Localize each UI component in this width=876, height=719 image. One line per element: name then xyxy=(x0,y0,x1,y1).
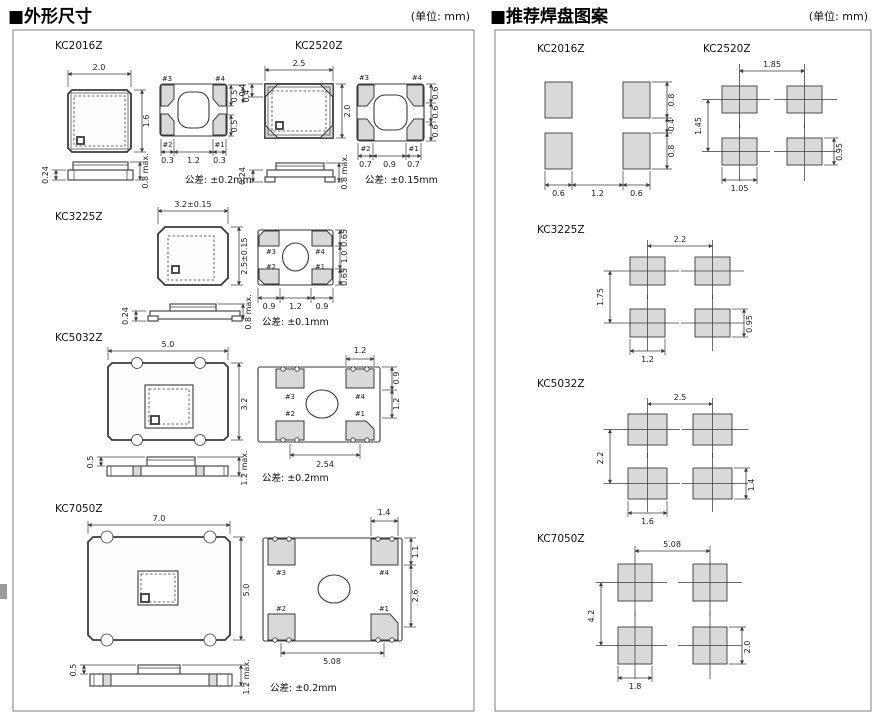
outline-kc3225z-side-view: 0.24 0.8 max. xyxy=(121,294,253,329)
dim-pad-width: 1.2 xyxy=(354,346,367,355)
pad-label: #2 xyxy=(162,141,172,149)
pad-label: #4 xyxy=(215,75,225,83)
tolerance-label: 公差: ±0.2mm xyxy=(262,472,329,484)
dim-right: 0.8 xyxy=(667,94,676,107)
pad-label: #2 xyxy=(285,410,295,418)
dim-right: 1.1 xyxy=(411,546,420,559)
orientation-mark xyxy=(77,137,84,144)
dim-bottom: 0.6 xyxy=(630,189,643,198)
dim-pitch-x: 5.08 xyxy=(663,540,681,549)
outline-kc3225z-bottom-view: #3 #4 #2 #1 0.65 1.0 0.65 0.9 1.2 0.9 公差… xyxy=(258,229,349,328)
dim-side-height: 1.2 max. xyxy=(240,450,249,485)
dim-side-height: 0.8 max. xyxy=(340,154,349,189)
land-kc3225z: KC3225Z 2.2 1.75 1.2 0.95 xyxy=(537,224,754,364)
dim-side-height: 1.2 max. xyxy=(242,659,251,694)
dim-side-thickness: 0.5 xyxy=(69,664,78,677)
outline-kc5032z-bottom-view: #3 #4 #2 #1 1.2 0.9 1.2 2.54 公差: ±0.2mm xyxy=(258,346,401,484)
pad-label: #3 xyxy=(266,248,276,256)
dim-pitch-y: 4.2 xyxy=(587,610,596,623)
dim-side-height: 0.8 max. xyxy=(244,294,253,329)
pad-label: #2 xyxy=(360,145,370,153)
model-label: KC2520Z xyxy=(295,40,343,52)
pad-label: #4 xyxy=(355,393,365,401)
model-label: KC2016Z xyxy=(537,43,585,55)
dim-right: 0.9 xyxy=(392,372,401,385)
dim-top-width: 2.0 xyxy=(93,63,106,72)
pad-label: #1 xyxy=(379,605,389,613)
dim-right: 0.6 xyxy=(431,125,440,138)
drawing-canvas: KC2016Z 2.0 1.6 #3 #4 #2 #1 xyxy=(0,0,876,719)
dim-bottom: 0.7 xyxy=(359,160,372,169)
model-label: KC2016Z xyxy=(55,40,103,52)
tolerance-label: 公差: ±0.15mm xyxy=(365,174,438,186)
dim-bottom: 0.9 xyxy=(316,302,329,311)
page-edge-tab xyxy=(0,584,7,599)
pad-label: #3 xyxy=(285,393,295,401)
dim-pad-height: 2.0 xyxy=(743,641,752,654)
pad-label: #1 xyxy=(315,263,325,271)
dim-right: 0.65 xyxy=(340,229,349,247)
dim-pad-height: 0.95 xyxy=(835,143,844,161)
outline-kc3225z: KC3225Z 3.2±0.15 2.5±0.15 #3 #4 #2 #1 xyxy=(55,200,349,330)
outline-kc2520z-side-view: 0.24 0.8 max. xyxy=(238,154,349,189)
dim-bottom: 1.2 xyxy=(289,302,302,311)
dim-bottom: 0.7 xyxy=(407,160,420,169)
pad-label: #2 xyxy=(266,263,276,271)
land-panel-border xyxy=(495,30,871,711)
dim-top-height: 2.5±0.15 xyxy=(240,237,249,274)
outline-kc2520z: KC2520Z 2.5 2.0 0.4 #3 #4 xyxy=(238,40,440,190)
dim-right: 0.6 xyxy=(431,87,440,100)
dim-top-height: 2.0 xyxy=(343,105,352,118)
dim-pitch-x: 1.85 xyxy=(763,60,781,69)
dim-pad-width: 1.4 xyxy=(378,508,391,517)
dim-right: 0.65 xyxy=(340,268,349,286)
land-kc2016z: KC2016Z 0.8 0.4 0.8 0.6 1.2 0.6 xyxy=(537,43,676,198)
dim-pad-width: 1.05 xyxy=(731,184,749,193)
dim-right: 1.0 xyxy=(340,251,349,264)
land-kc2520z: KC2520Z 1.85 1.45 1.05 0.95 xyxy=(694,43,844,193)
orientation-mark xyxy=(276,122,283,129)
outline-kc5032z-top-view: 5.0 3.2 xyxy=(108,340,249,446)
dim-pitch-x: 2.2 xyxy=(674,235,687,244)
dim-top-height: 5.0 xyxy=(242,584,251,597)
dim-right: 0.5 xyxy=(230,120,239,133)
dim-right: 0.4 xyxy=(667,119,676,132)
outline-kc2016z-side-view: 0.24 0.8 max. xyxy=(41,153,150,188)
pad-label: #3 xyxy=(276,569,286,577)
dim-pad-width: 1.8 xyxy=(629,682,642,691)
land-pad xyxy=(545,133,572,169)
orientation-mark xyxy=(141,594,149,602)
dim-side-height: 0.8 max. xyxy=(141,153,150,188)
dim-top-height: 1.6 xyxy=(142,115,151,128)
pad-label: #4 xyxy=(379,569,389,577)
dim-side-thickness: 0.24 xyxy=(121,307,130,325)
dim-top-width: 3.2±0.15 xyxy=(174,200,211,209)
pad-label: #3 xyxy=(359,74,369,82)
pad-label: #1 xyxy=(355,410,365,418)
pad-label: #2 xyxy=(276,605,286,613)
dim-top-width: 7.0 xyxy=(153,514,166,523)
dim-top-width: 2.5 xyxy=(293,59,306,68)
model-label: KC3225Z xyxy=(537,224,585,236)
dim-pad-width: 1.6 xyxy=(641,517,654,526)
land-pad xyxy=(623,82,650,118)
dim-side-thickness: 0.24 xyxy=(238,167,247,185)
model-label: KC5032Z xyxy=(537,378,585,390)
dim-pitch-x: 2.5 xyxy=(674,393,687,402)
model-label: KC3225Z xyxy=(55,211,103,223)
tolerance-label: 公差: ±0.2mm xyxy=(270,682,337,694)
pad-label: #4 xyxy=(412,74,422,82)
dim-bottom: 0.9 xyxy=(383,160,396,169)
tolerance-label: 公差: ±0.1mm xyxy=(262,316,329,328)
dim-right: 0.8 xyxy=(667,145,676,158)
dim-right: 2.6 xyxy=(411,590,420,603)
outline-kc7050z-bottom-view: #3 #4 #2 #1 1.4 1.1 2.6 5.08 公差: ±0.2mm xyxy=(263,508,420,694)
outline-kc2520z-top-view: 2.5 2.0 0.4 xyxy=(238,59,352,138)
outline-kc2520z-bottom-view: #3 #4 #2 #1 0.7 0.9 0.7 0.6 0.6 0.6 xyxy=(357,74,440,169)
land-pad xyxy=(545,82,572,118)
dim-pitch-y: 1.45 xyxy=(694,117,703,135)
dim-bottom: 0.9 xyxy=(263,302,276,311)
outline-kc7050z-top-view: 7.0 5.0 xyxy=(88,514,251,646)
land-pad xyxy=(623,133,650,169)
outline-kc3225z-top-view: 3.2±0.15 2.5±0.15 xyxy=(158,200,249,285)
outline-kc2016z-top-view: 2.0 1.6 xyxy=(68,63,151,152)
dim-top-width: 5.0 xyxy=(162,340,175,349)
model-label: KC2520Z xyxy=(703,43,751,55)
dim-bottom: 0.3 xyxy=(161,156,174,165)
dim-pad-width: 1.2 xyxy=(641,355,654,364)
dim-corner-pad: 0.4 xyxy=(238,84,247,97)
outline-kc7050z-side-view: 0.5 1.2 max. xyxy=(69,659,251,694)
dim-bottom: 1.2 xyxy=(591,189,604,198)
dim-bottom: 2.54 xyxy=(316,460,334,469)
orientation-mark xyxy=(151,416,159,424)
dim-pad-height: 1.4 xyxy=(747,479,756,492)
dim-pad-height: 0.95 xyxy=(745,315,754,333)
outline-kc5032z-side-view: 0.5 1.2 max. xyxy=(86,450,249,485)
model-label: KC7050Z xyxy=(537,533,585,545)
dim-right: 1.2 xyxy=(392,398,401,411)
pad-label: #1 xyxy=(214,141,224,149)
land-kc5032z: KC5032Z 2.5 2.2 1.6 1.4 xyxy=(537,378,756,526)
dim-pitch-y: 1.75 xyxy=(596,288,605,306)
dim-pitch-y: 2.2 xyxy=(596,452,605,465)
dim-bottom: 0.3 xyxy=(213,156,226,165)
land-kc7050z: KC7050Z 5.08 4.2 1.8 2.0 xyxy=(537,533,752,691)
outline-kc7050z: KC7050Z 7.0 5.0 #3 #4 #2 xyxy=(55,503,420,695)
datasheet-page: { "header": { "outline_title": "■外形尺寸", … xyxy=(0,0,876,719)
dim-side-thickness: 0.24 xyxy=(41,166,50,184)
dim-top-height: 3.2 xyxy=(240,398,249,411)
model-label: KC7050Z xyxy=(55,503,103,515)
pad-label: #4 xyxy=(315,248,325,256)
pad-label: #3 xyxy=(162,75,172,83)
outline-kc2016z: KC2016Z 2.0 1.6 #3 #4 #2 #1 xyxy=(41,40,252,189)
pad-label: #1 xyxy=(408,145,418,153)
outline-kc5032z: KC5032Z 5.0 3.2 #3 #4 #2 xyxy=(55,332,401,486)
orientation-mark xyxy=(172,266,179,273)
dim-bottom: 0.6 xyxy=(552,189,565,198)
dim-side-thickness: 0.5 xyxy=(86,456,95,469)
dim-bottom: 5.08 xyxy=(323,657,341,666)
dim-right: 0.6 xyxy=(431,106,440,119)
dim-bottom: 1.2 xyxy=(187,156,200,165)
model-label: KC5032Z xyxy=(55,332,103,344)
